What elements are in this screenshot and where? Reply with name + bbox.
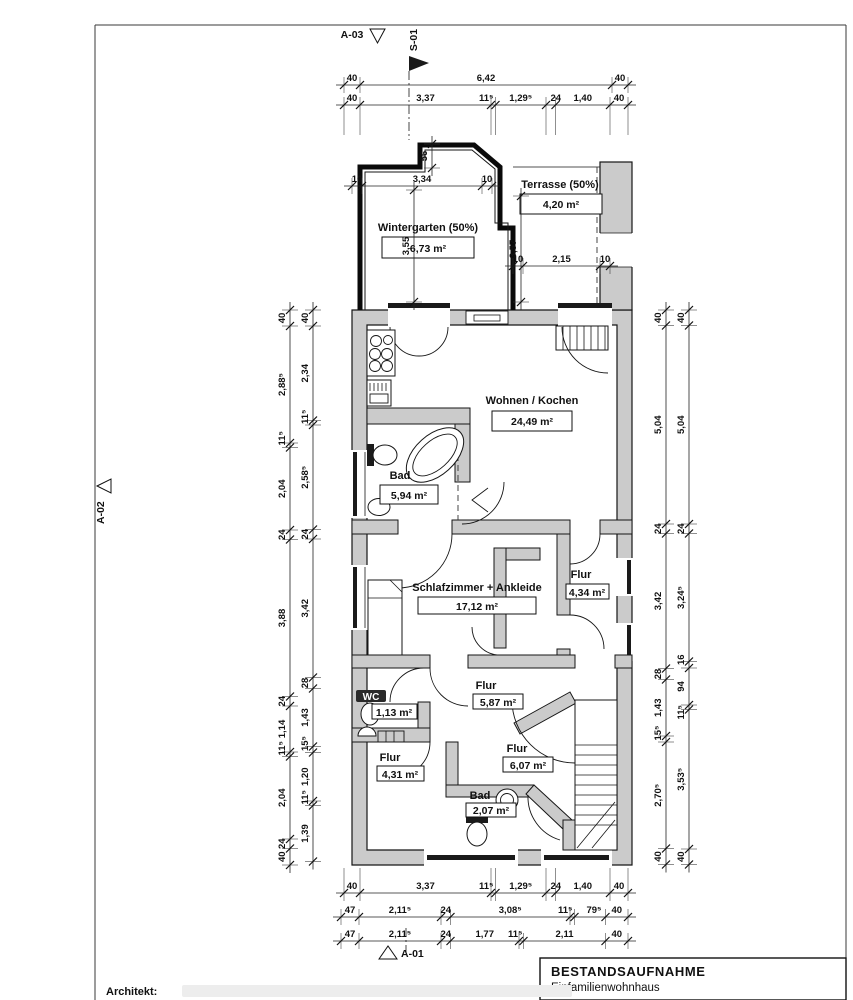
architect-label: Architekt: [106,986,157,998]
dim-label: 40 [277,851,288,862]
dim-label: 3,53⁵ [676,768,687,791]
dim-label: 16 [676,654,687,665]
dim-label: 2,11⁵ [389,905,411,916]
marker-a01-label: A-01 [401,948,424,960]
title-block: BESTANDSAUFNAHME Einfamilienwohnhaus [540,958,846,1000]
dim-label: 3,37 [416,881,435,892]
dim-label: 3,34 [413,174,432,185]
dim-label: 24 [676,523,687,534]
dim-label: 3,42 [653,592,664,611]
dim-label: 3,57 [508,240,519,259]
dim-label: 1,29⁵ [509,93,532,104]
dim-label: 40 [347,73,358,84]
dim-label: 2,11 [556,929,575,940]
dim-label: 11⁵ [479,881,494,892]
fridge-icon [367,380,391,406]
dim-label: 1,77 [476,929,495,940]
title-block-title: BESTANDSAUFNAHME [551,964,706,979]
room-area: 6,73 m² [410,243,447,255]
dim-label: 11⁵ [300,409,311,424]
dim-label: 3,24⁵ [676,586,687,609]
dim-label: 1,14 [277,719,288,738]
dim-label: 5,04 [653,415,664,434]
dim-label: 24 [440,929,451,940]
dim-label: 11⁵ [277,741,288,756]
dim-label: 2,15 [552,254,571,265]
dim-label: 11⁵ [479,93,494,104]
dim-label: 1,39 [300,824,311,843]
dim-label: 40 [615,73,626,84]
dim-label: 3,42 [300,599,311,618]
staircase-upper [556,326,608,350]
dim-label: 2,04 [277,788,288,807]
dim-label: 3,88 [277,609,288,628]
dim-label: 1,20 [300,768,311,787]
dim-label: 40 [676,851,687,862]
room-labels: Wintergarten (50%) 6,73 m² Terrasse (50%… [363,179,609,817]
room-area: 17,12 m² [456,601,499,613]
marker-a03-label: A-03 [341,29,364,41]
dim-label: 11⁵ [676,705,687,720]
room-label-schlafzimmer: Schlafzimmer + Ankleide [412,582,542,594]
dim-label: 47 [345,905,356,916]
dim-label: 3,55 [401,236,412,255]
toilet-icon [373,445,397,465]
room-area: 5,87 m² [480,697,517,709]
room-label-flur2: Flur [476,680,497,692]
dim-label: 47 [345,929,356,940]
dim-label: 1,43 [300,708,311,727]
dim-label: 24 [550,881,561,892]
redacted-text [182,985,572,997]
dim-label: 40 [347,881,358,892]
dim-label: 10 [352,174,363,185]
marker-a03-triangle-icon [370,29,385,43]
dim-label: 2,70⁵ [653,784,664,807]
dim-label: 10 [600,254,611,265]
dim-label: 11⁵ [508,929,523,940]
dim-label: 40 [611,929,622,940]
marker-s01-flag-icon [409,56,429,71]
dim-label: 94 [676,681,687,692]
door-arrow-icon [472,488,488,512]
dim-label: 5,04 [676,415,687,434]
dim-label: 1,43 [653,699,664,718]
architect-row: Architekt: [106,985,572,998]
marker-a02-triangle-icon [97,479,111,493]
dim-label: 40 [653,851,664,862]
dim-label: 24 [277,695,288,706]
dim-label: 40 [653,312,664,323]
dim-label: 40 [347,93,358,104]
room-area: 2,07 m² [473,805,510,817]
dim-label: 3,37 [416,93,435,104]
dim-label: 2,88⁵ [277,373,288,396]
dim-label: 1,40 [574,881,593,892]
dim-label: 28 [300,678,311,689]
dim-label: 79⁵ [586,905,601,916]
room-label-bad2: Bad [470,790,491,802]
marker-a02-label: A-02 [95,501,107,524]
room-label-bad: Bad [390,470,411,482]
dim-label: 40 [676,312,687,323]
room-label-wintergarten: Wintergarten (50%) [378,222,478,234]
room-label-flur3: Flur [380,752,401,764]
bed-icon [368,580,402,655]
dim-label: 11⁵ [277,431,288,446]
dim-label: 2,58⁵ [300,466,311,489]
dim-label: 40 [614,93,625,104]
staircase-lower [575,700,617,850]
room-label-wohnen-kochen: Wohnen / Kochen [486,395,579,407]
dim-label: 24 [300,528,311,539]
room-area: 4,20 m² [543,199,580,211]
dim-label: 10 [482,174,493,185]
dim-label: 40 [614,881,625,892]
dim-label: 24 [550,93,561,104]
kitchen-fixtures [367,330,395,406]
room-area: 1,13 m² [376,707,413,719]
dim-label: 40 [611,905,622,916]
dim-label: 40 [277,313,288,324]
room-label-flur1: Flur [571,569,592,581]
dim-label: 15⁵ [300,736,311,751]
toilet2-icon [467,822,487,846]
room-area: 4,31 m² [382,769,419,781]
dim-label: 24 [277,529,288,540]
dim-label: 24 [653,523,664,534]
room-area: 5,94 m² [391,490,428,502]
dim-label: 1,40 [574,93,593,104]
dim-label: 6,42 [477,73,496,84]
room-label-terrasse: Terrasse (50%) [521,179,599,191]
dim-label: 2,04 [277,479,288,498]
dim-label: 1,29⁵ [509,881,532,892]
room-area: 24,49 m² [511,416,554,428]
dim-label: 11⁵ [558,905,573,916]
room-label-flur4: Flur [507,743,528,755]
marker-a01-triangle-icon [379,946,397,959]
room-area: 4,34 m² [569,587,606,599]
dim-label: 24 [440,905,451,916]
dim-label: 15⁵ [653,725,664,740]
dim-label: 56 [419,151,430,162]
floor-plan-drawing: A-03 S-01 A-02 A-01 [0,0,853,1000]
room-label-wc: WC [363,692,380,703]
dim-label: 2,34 [300,363,311,382]
dim-label: 24 [277,838,288,849]
marker-s01-label: S-01 [408,29,420,51]
dim-label: 40 [300,313,311,324]
dim-label: 11⁵ [300,790,311,805]
dim-label: 3,08⁵ [499,905,522,916]
dim-label: 2,11⁵ [389,929,411,940]
dim-label: 28 [653,669,664,680]
room-area: 6,07 m² [510,760,547,772]
